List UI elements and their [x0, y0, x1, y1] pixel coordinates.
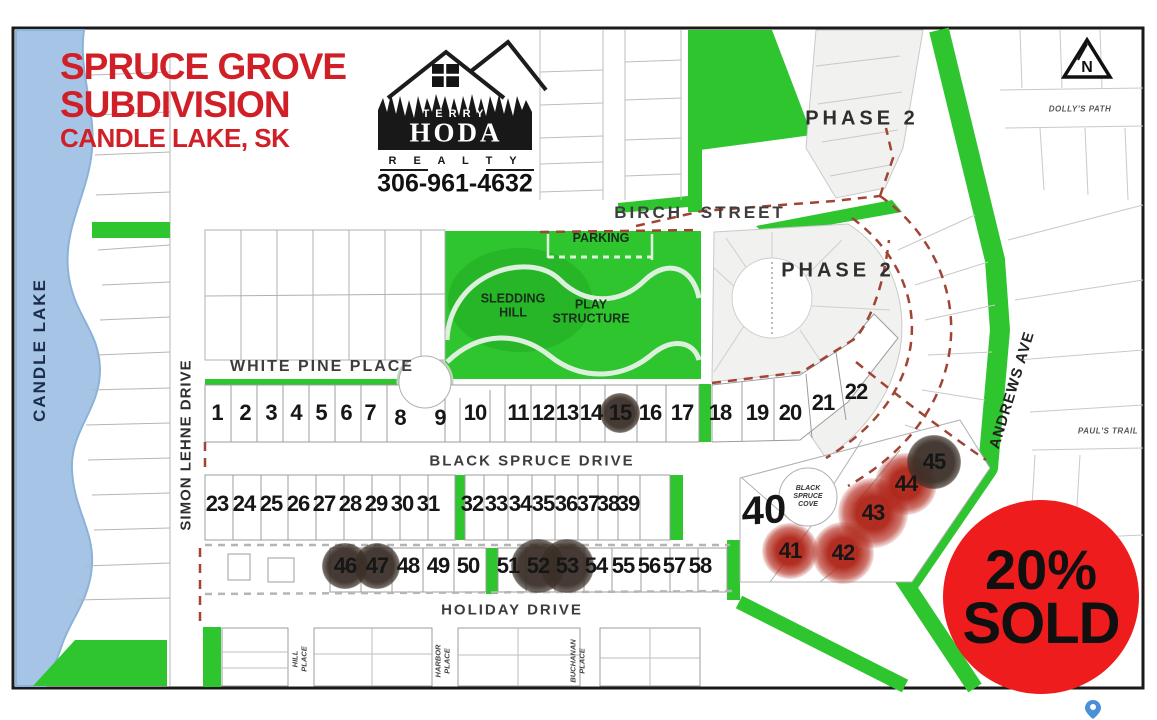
lot-number-35: 35	[532, 491, 554, 517]
lot-number-11: 11	[507, 400, 528, 426]
lot-number-51: 51	[497, 553, 519, 579]
lot-number-44: 44	[895, 471, 917, 497]
lot-number-34: 34	[509, 491, 531, 517]
white-pine-back-lots	[205, 230, 445, 360]
harbor-place-label: HARBOR PLACE	[434, 645, 451, 678]
phase2-upper-label: PHASE 2	[805, 108, 919, 131]
lot-number-13: 13	[556, 400, 578, 426]
lot-number-55: 55	[612, 553, 634, 579]
lot-number-36: 36	[555, 491, 577, 517]
location-pin-icon	[1085, 700, 1101, 719]
lot-number-25: 25	[260, 491, 282, 517]
title-line1: SPRUCE GROVE	[60, 48, 346, 86]
lot-number-4: 4	[290, 400, 301, 426]
candle-lake-label: CANDLE LAKE	[30, 278, 50, 422]
dollys-path-label: DOLLY'S PATH	[1049, 105, 1112, 114]
sledding-hill-label: SLEDDING HILL	[481, 292, 546, 320]
lot-number-12: 12	[532, 400, 554, 426]
lot-number-16: 16	[639, 400, 661, 426]
lot-number-30: 30	[391, 491, 413, 517]
flyer-title: SPRUCE GROVE SUBDIVISION CANDLE LAKE, SK	[60, 48, 346, 152]
lot-number-58: 58	[689, 553, 711, 579]
lot-number-45: 45	[923, 449, 945, 475]
lot-number-46: 46	[334, 553, 356, 579]
lot-number-56: 56	[638, 553, 660, 579]
lot-number-57: 57	[663, 553, 685, 579]
phase2-lower-label: PHASE 2	[781, 260, 895, 283]
lot-number-33: 33	[485, 491, 507, 517]
holiday-drive-label: HOLIDAY DRIVE	[441, 602, 583, 619]
lot-number-10: 10	[464, 400, 486, 426]
subdivision-map-flyer: SPRUCE GROVE SUBDIVISION CANDLE LAKE, SK…	[0, 0, 1157, 720]
lot-number-24: 24	[233, 491, 255, 517]
lot-number-18: 18	[709, 400, 731, 426]
badge-sold-text: SOLD	[962, 596, 1119, 651]
phone-number: 306-961-4632	[377, 170, 533, 199]
lot-number-20: 20	[779, 400, 801, 426]
lot-number-42: 42	[832, 540, 854, 566]
pauls-trail-label: PAUL'S TRAIL	[1078, 427, 1138, 436]
lot-number-17: 17	[671, 400, 693, 426]
lot-number-21: 21	[812, 390, 834, 416]
lot-number-23: 23	[206, 491, 228, 517]
lot-number-6: 6	[340, 400, 351, 426]
lot-number-53: 53	[556, 553, 578, 579]
logo-hoda-text: HODA	[410, 118, 503, 149]
parking-label: PARKING	[573, 232, 630, 246]
title-line3: CANDLE LAKE, SK	[60, 125, 346, 152]
play-structure-label: PLAY STRUCTURE	[552, 298, 629, 326]
lot-number-22: 22	[845, 379, 867, 405]
black-spruce-cove-label: BLACK SPRUCE COVE	[793, 485, 822, 509]
hill-place-label: HILL PLACE	[291, 646, 308, 671]
black-spruce-drive-label: BLACK SPRUCE DRIVE	[429, 453, 634, 470]
lot-number-41: 41	[779, 538, 801, 564]
lot-number-49: 49	[427, 553, 449, 579]
buchanan-place-label: BUCHANAN PLACE	[569, 639, 586, 682]
lot-number-48: 48	[397, 553, 419, 579]
birch-street-label: BIRCH STREET	[614, 203, 786, 223]
north-letter: N	[1081, 59, 1093, 77]
lot-number-15: 15	[609, 400, 631, 426]
lot-number-50: 50	[457, 553, 479, 579]
lot-number-14: 14	[580, 400, 602, 426]
lot-number-52: 52	[527, 553, 549, 579]
lot-number-27: 27	[313, 491, 335, 517]
white-pine-place-label: WHITE PINE PLACE	[230, 358, 414, 376]
lot-number-28: 28	[339, 491, 361, 517]
lot-number-32: 32	[461, 491, 483, 517]
lot-number-9: 9	[434, 405, 445, 431]
lot-number-19: 19	[746, 400, 768, 426]
lot-number-26: 26	[287, 491, 309, 517]
lot-number-3: 3	[265, 400, 276, 426]
title-line2: SUBDIVISION	[60, 86, 346, 124]
lot-number-54: 54	[585, 553, 607, 579]
lot-number-7: 7	[364, 400, 375, 426]
simon-lehne-drive-label: SIMON LEHNE DRIVE	[178, 359, 195, 530]
lot-number-47: 47	[366, 553, 388, 579]
lot-number-1: 1	[211, 400, 222, 426]
sold-percentage-badge: 20% SOLD	[943, 500, 1139, 694]
lot-number-31: 31	[417, 491, 439, 517]
lot-number-39: 39	[617, 491, 639, 517]
logo-realty-text: R E A L T Y	[388, 155, 523, 167]
badge-percent: 20%	[985, 543, 1097, 596]
lot-number-2: 2	[239, 400, 250, 426]
lot-number-5: 5	[315, 400, 326, 426]
lot-number-8: 8	[394, 405, 405, 431]
lot-number-43: 43	[862, 500, 884, 526]
lot-number-29: 29	[365, 491, 387, 517]
